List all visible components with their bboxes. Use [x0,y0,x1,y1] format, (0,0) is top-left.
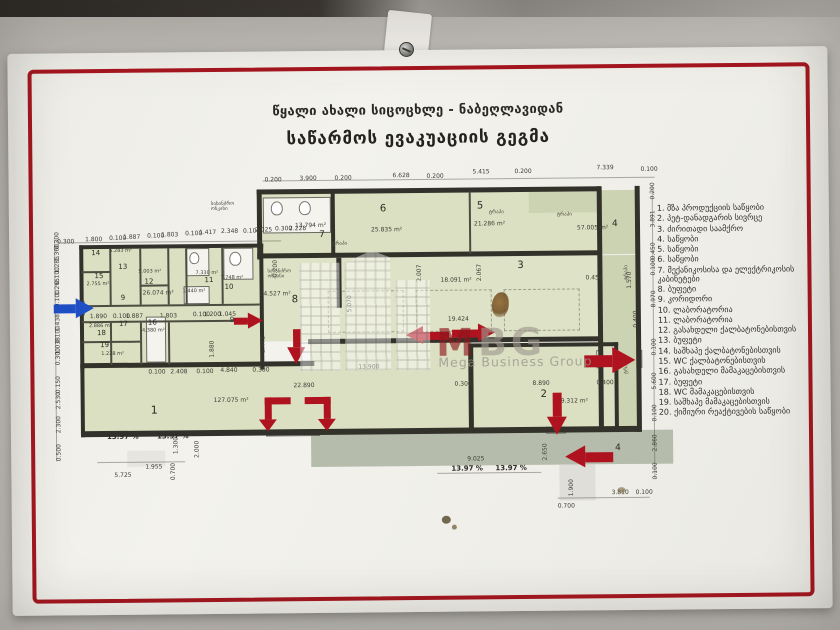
plan-label: 5.725 [114,473,131,479]
legend-item: 15. WC ქალბატონებისთვის [656,355,810,366]
plan-label: 7.330 m² [195,271,218,276]
plan-label: 7.748 m² [220,276,243,281]
plan-label: 17 [119,321,128,328]
plan-label: 4 [612,220,618,229]
plan-label: 0.700 [558,504,575,510]
plan-label: 13.97 % [157,433,189,441]
wall [635,186,642,432]
plan-label: 4 [615,444,621,453]
plan-label: 1.441 [260,336,266,353]
plan-label: სახანძრო ონკანი [211,202,235,213]
legend-item: 6. საწყობი [655,254,809,265]
plan-label: 15 [94,273,103,280]
stain [452,525,457,530]
exterior-stairs-right [559,464,595,500]
partition-wall [168,322,170,364]
screw-icon [399,42,414,57]
arrow-part [565,445,585,467]
plan-label: 13.97 % [495,465,527,473]
legend-item: 10. ლაბორატორია [656,304,810,315]
plan-label: ტრაპი [624,265,629,280]
plan-label: 13.900 [358,364,379,370]
plan-label: 0.200 [335,176,352,182]
plan-label: 26.074 m² [143,290,174,297]
stain [618,487,626,493]
plan-label: 0.150 [56,376,62,393]
plan-label: 0.400 [596,380,613,386]
legend-item: 5. საწყობი [655,243,809,254]
plan-label: 57.005 m² [577,225,608,232]
plan-label: 14 [91,250,100,257]
arrow-part [406,326,423,344]
plan-label: 13 [118,264,127,271]
evacuation-arrow [565,445,613,468]
plan-label: 3.900 [300,176,317,182]
plan-label: 0.300 [56,348,62,365]
plan-label: 6.628 [392,173,409,179]
legend-item: 13. ბუფეტი [656,335,810,346]
arrow-part [547,417,567,435]
arrow-part [234,318,248,325]
plan-label: 25.835 m² [371,227,402,234]
plan-label: 0.300 [252,367,269,373]
plan-label: ტრაპი [489,210,504,215]
arrow-part [248,313,263,329]
fixture-icon [229,252,241,266]
evacuation-arrow [547,393,568,435]
photo-of-evacuation-plan-poster: წყალი ახალი სიცოცხლე - ნაბეღლავიდან საწა… [0,0,840,630]
arrow-part [76,298,94,318]
arrow-part [54,304,76,313]
plan-label: 1.417 [199,230,216,236]
plan-label: 18.091 m² [440,278,471,285]
room-5-rack-area [529,190,597,213]
plan-label: 2.228 [289,226,306,232]
plan-label: ტრაპი [557,213,572,218]
plan-label: 7.339 [596,165,613,171]
plan-label: 19 [100,342,109,349]
legend-item: 9. კორიდორი [656,294,810,305]
plan-label: 1 [151,405,158,417]
stain [442,516,451,524]
legend-item: 4. საწყობი [655,233,809,244]
plan-label: 0.400 [633,310,639,327]
plan-label: 2.755 m² [87,282,110,287]
plan-label: 0.300 [454,382,471,388]
wall [80,365,85,437]
plan-label: 2.650 [543,443,549,460]
plan-label: 5 [477,201,483,212]
arrow-part [324,397,331,419]
plan-label: 2.007 [417,265,423,282]
plan-label: 5.070 [347,295,353,312]
plan-label: 1.880 [210,341,216,358]
evacuation-arrow [297,397,331,435]
plan-label: 0.100 [640,167,657,173]
plan-label: 8 [292,295,298,306]
legend-item: 1. მზა პროდუქციის საწყობი [655,202,809,213]
arrow-part [292,329,300,347]
plan-label: 0.500 [57,444,63,461]
plan-label: 0.100 [148,369,165,375]
plan-label: 7 [319,231,325,240]
plan-label: 0.200 [514,169,531,175]
plan-label: 5.003 m² [138,269,161,274]
plan-label: 1.900 [569,479,575,496]
plan-label: 2.300 [56,416,62,433]
plan-label: ტრაპი [332,242,347,247]
arrow-part [265,397,272,419]
plan-label: 0.100 [196,369,213,375]
wall [336,258,341,308]
plan-label: 6 [380,204,386,215]
plan-label: 18 [97,330,106,337]
plan-label: 2.886 m² [89,324,112,329]
legend-item: 17. ბუფეტი [656,376,810,387]
legend-list: 1. მზა პროდუქციის საწყობი2. პეტ-დანადგარ… [655,202,811,418]
plan-label: 9 [121,295,126,302]
plan-label: 2.348 [221,229,238,235]
legend-item: 12. გასახდელი ქალბატონებისთვის [656,324,810,335]
partition-wall [110,323,112,365]
plan-label: 127.075 m² [214,398,249,405]
evacuation-arrow [234,313,263,330]
legend-item: 19. საშხაპე მამაკაცებისთვის [657,396,811,407]
plan-label: 13.97 % [107,434,139,442]
legend-item: 16. გასახდელი მამაკაცებისთვის [656,366,810,377]
plan-label: სახანძრო ონკანი [267,269,291,280]
legend-item: 14. საშხაპე ქალბატონებისთვის [656,345,810,356]
plan-label: 2.000 [194,441,200,458]
plan-label: 5.415 [472,169,489,175]
plan-label: 8.890 [532,381,549,387]
legend-item: 3. ძირითადი საამქრო [655,223,809,234]
legend-item: 7. მექანიკოსისა და ელექტრიკოსის კაბინეტე… [655,264,809,284]
plan-label: 1.440 m² [183,289,206,294]
plan-label: 1.955 [145,464,162,470]
plan-label: 22.890 [294,383,315,389]
arrow-part [585,452,613,462]
plan-label: 2.408 [170,369,187,375]
plan-label: 4.840 [220,368,237,374]
plan-label: 0.200 [650,182,656,199]
plan-label: 11 [204,277,213,284]
evacuation-arrow [287,329,306,364]
plan-label: 0.200 [265,177,282,183]
fixture-icon [271,201,283,215]
plan-label: 0.450 [585,275,602,281]
plan-label: 24.527 m² [260,291,291,298]
plan-label: 0.100 [653,462,659,479]
plan-label: 1.803 [161,232,178,238]
plan-label: 16 [148,320,157,327]
fixture-icon [299,201,311,215]
poster: წყალი ახალი სიცოცხლე - ნაბეღლავიდან საწა… [0,0,840,630]
arrow-part [318,419,336,431]
dimension-line [558,497,650,499]
plan-label: 1.887 [123,235,140,241]
entry-arrow [54,298,94,319]
plan-label: 2.067 [477,264,483,281]
legend-item: 20. ქიმიური რეაქტივების საწყობი [657,407,811,418]
legend-item: 11. ლაბორატორია [656,314,810,325]
dimension-line [263,177,655,182]
plan-label: 1.228 m² [101,352,124,357]
fixture-icon [189,252,199,264]
mbg-watermark-subtitle: Mega Business Group [438,353,592,369]
legend-item: 18. WC მამაკაცებისთვის [657,386,811,397]
legend-item: 2. პეტ-დანადგარის სივრცე [655,213,809,224]
plan-label: 12 [144,279,153,286]
plan-label: 2.025 [255,227,272,233]
plan-label: 1.803 [160,313,177,319]
plan-label: 2.530 [56,392,62,409]
plan-label: 0.100 [636,490,653,496]
evacuation-arrow [265,397,299,435]
arrow-part [612,347,635,373]
plan-label: 0.700 [171,463,177,480]
plan-label: 1.887 [126,314,143,320]
plan-label: 3 [517,261,523,272]
plan-label: 9.025 [467,456,484,462]
plan-label: 13.97 % [451,465,483,473]
arrow-part [287,347,305,364]
plan-label: 1.800 [85,237,102,243]
plan-label: 4.380 m² [142,328,165,333]
legend-item: 8. ბუფეტი [656,283,810,294]
arrow-part [259,419,277,431]
plan-label: 2.860 [652,434,658,451]
plan-label: 0.200 [427,174,444,180]
arrow-part [553,393,562,417]
plan-label: 5.283 m² [109,249,132,254]
plan-label: 10 [225,284,234,291]
plan-label: 21.286 m² [474,221,505,228]
